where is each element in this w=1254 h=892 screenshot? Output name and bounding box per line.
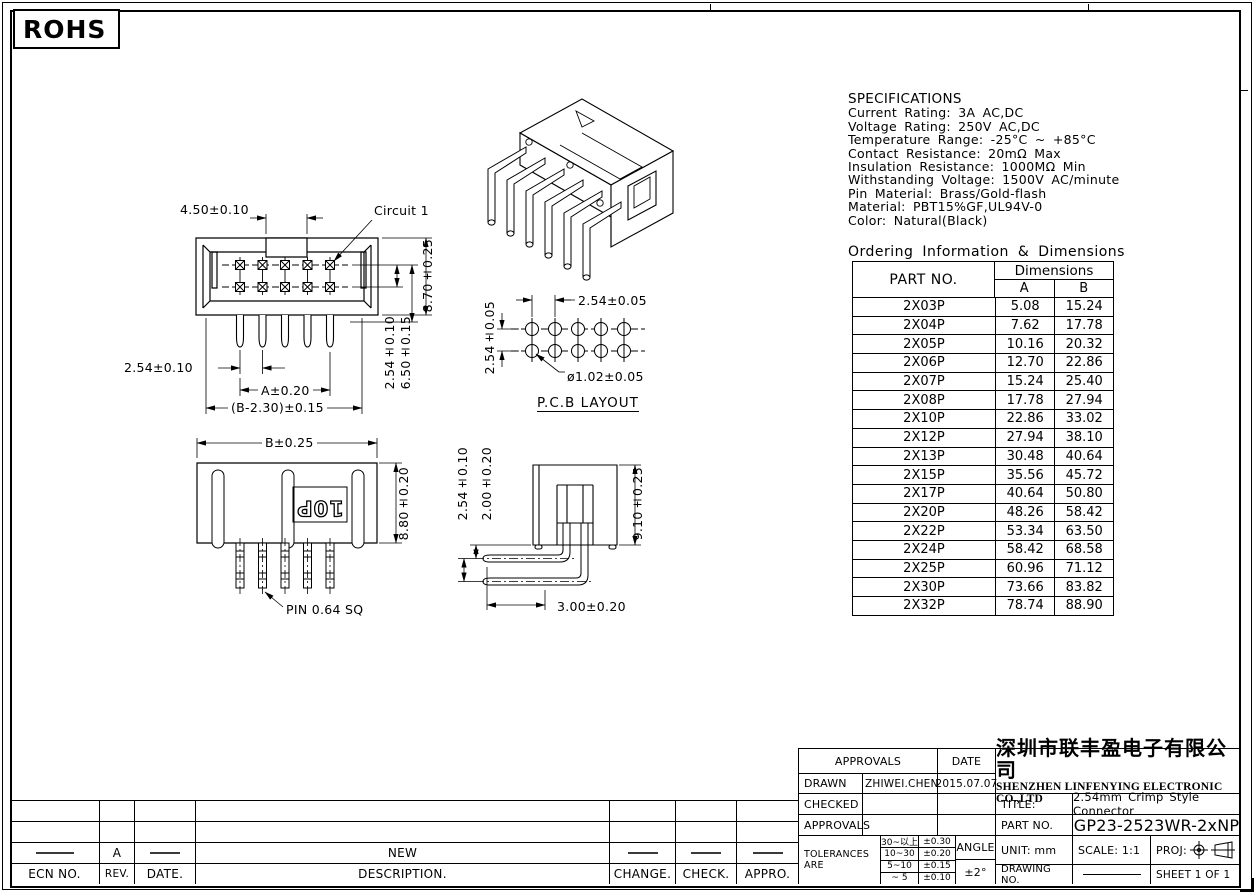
- dim-a-cell: 5.08: [995, 298, 1055, 316]
- date-placeholder: [135, 842, 196, 863]
- rev-header: REV.: [100, 863, 135, 884]
- checked-value: [862, 793, 937, 814]
- rev-value: A: [100, 842, 135, 863]
- dim-b-cell: 17.78: [1054, 317, 1113, 335]
- rev-cell: [610, 821, 676, 842]
- dim-a-cell: 48.26: [995, 504, 1055, 522]
- dim-b-cell: 83.82: [1054, 578, 1113, 596]
- approvals-date: [937, 814, 995, 835]
- front-dim-b: (B-2.30)±0.15: [228, 401, 327, 414]
- part-no-cell: 2X12P: [853, 429, 995, 447]
- dim-b-cell: 40.64: [1054, 448, 1113, 466]
- dim-a-cell: 60.96: [995, 560, 1055, 578]
- frame-tick: [1088, 4, 1089, 12]
- bottom-dim-b: B±0.25: [262, 436, 317, 449]
- table-row: 2X30P73.6683.82: [853, 577, 1113, 596]
- dim-b-cell: 45.72: [1054, 466, 1113, 484]
- tolerances-label: TOLERANCES ARE: [798, 835, 880, 884]
- part-no-cell: 2X24P: [853, 541, 995, 559]
- date-header: DATE: [937, 748, 995, 773]
- dim-b-cell: 71.12: [1054, 560, 1113, 578]
- dim-b-cell: 22.86: [1054, 354, 1113, 372]
- company-cell: 深圳市联丰盈电子有限公司 SHENZHEN LINFENYING ELECTRO…: [995, 748, 1240, 793]
- appro-placeholder: [737, 842, 798, 863]
- part-no-label: PART NO.: [995, 814, 1072, 835]
- table-row: 2X08P17.7827.94: [853, 390, 1113, 409]
- dim-b-cell: 68.58: [1054, 541, 1113, 559]
- drawn-name: ZHIWEI.CHEN: [862, 773, 937, 793]
- tolerances-table: 30~以上±0.30 10~30±0.20 5~10±0.15 ~ 5±0.10: [880, 835, 955, 884]
- dim-b-cell: 15.24: [1054, 298, 1113, 316]
- col-a-header: A: [994, 280, 1054, 297]
- check-header: CHECK.: [676, 863, 737, 884]
- rev-cell: [100, 800, 135, 821]
- dim-a-cell: 58.42: [995, 541, 1055, 559]
- date-header: DATE.: [135, 863, 196, 884]
- part-no-cell: 2X30P: [853, 578, 995, 596]
- table-row: 2X05P10.1620.32: [853, 334, 1113, 353]
- projection-cell: PROJ:: [1150, 835, 1240, 864]
- dim-a-cell: 12.70: [995, 354, 1055, 372]
- part-no-cell: 2X15P: [853, 466, 995, 484]
- pcb-layout-caption: P.C.B LAYOUT: [537, 397, 639, 412]
- rev-cell: [737, 800, 798, 821]
- rev-cell: [610, 800, 676, 821]
- third-angle-projection-icon: [1189, 840, 1235, 860]
- tol-value: ±0.20: [918, 847, 955, 859]
- rev-cell: [10, 821, 100, 842]
- table-row: 2X03P5.0815.24: [853, 297, 1113, 316]
- approvals-header: APPROVALS: [798, 748, 937, 773]
- side-dim-pitch: 2.54±0.10: [456, 447, 470, 520]
- angle-label: ANGLE: [955, 835, 995, 859]
- drawing-sheet: ROHS: [0, 0, 1254, 892]
- revision-table: A NEW ECN NO. REV. DATE. DESCRIPTION. CH…: [10, 800, 798, 884]
- dim-a-cell: 30.48: [995, 448, 1055, 466]
- front-dim-pitch: 2.54±0.10: [124, 361, 193, 374]
- dim-a-cell: 7.62: [995, 317, 1055, 335]
- part-no-cell: 2X05P: [853, 335, 995, 353]
- rev-cell: [135, 800, 196, 821]
- tol-range: 5~10: [880, 860, 918, 872]
- isometric-view-drawing: [482, 85, 707, 290]
- table-row: 2X04P7.6217.78: [853, 316, 1113, 335]
- table-row: 2X20P48.2658.42: [853, 503, 1113, 522]
- front-dim-height: 8.70±0.25: [421, 239, 435, 312]
- drawing-no-value: [1072, 864, 1150, 884]
- part-no-cell: 2X13P: [853, 448, 995, 466]
- part-no-cell: 2X03P: [853, 298, 995, 316]
- dim-b-cell: 20.32: [1054, 335, 1113, 353]
- specifications-title: SPECIFICATIONS: [848, 93, 1119, 106]
- proj-label: PROJ:: [1156, 844, 1187, 857]
- dim-a-cell: 73.66: [995, 578, 1055, 596]
- approvals-value: [862, 814, 937, 835]
- appro-header: APPRO.: [737, 863, 798, 884]
- angle-value: ±2°: [955, 859, 995, 884]
- frame-tick: [1240, 90, 1248, 91]
- drawn-label: DRAWN: [798, 773, 862, 793]
- rev-cell: [100, 821, 135, 842]
- tol-value: ±0.10: [918, 872, 955, 884]
- spec-line: Material: PBT15%GF,UL94V-0: [848, 200, 1119, 213]
- dim-a-cell: 22.86: [995, 410, 1055, 428]
- rev-cell: [196, 821, 610, 842]
- dim-b-cell: 88.90: [1054, 597, 1113, 615]
- spec-line: Contact Resistance: 20mΩ Max: [848, 147, 1119, 160]
- bottom-view-drawing: [150, 430, 485, 630]
- pcb-dim-vertical: 2.54±0.05: [483, 301, 497, 374]
- check-placeholder: [676, 842, 737, 863]
- dim-a-cell: 35.56: [995, 466, 1055, 484]
- bottom-pin-label: PIN 0.64 SQ: [286, 603, 363, 616]
- part-no-cell: 2X10P: [853, 410, 995, 428]
- front-dim-pin-depth: 6.50±0.15: [399, 316, 413, 389]
- description-header: DESCRIPTION.: [196, 863, 610, 884]
- dim-b-cell: 27.94: [1054, 391, 1113, 409]
- spec-line: Voltage Rating: 250V AC,DC: [848, 120, 1119, 133]
- spec-line: Pin Material: Brass/Gold-flash: [848, 187, 1119, 200]
- dim-a-cell: 15.24: [995, 373, 1055, 391]
- part-no-header: PART NO.: [853, 262, 994, 297]
- unit-label: UNIT: mm: [995, 835, 1072, 864]
- dim-a-cell: 78.74: [995, 597, 1055, 615]
- checked-label: CHECKED: [798, 793, 862, 814]
- specifications-block: SPECIFICATIONS Current Rating: 3A AC,DC …: [848, 93, 1119, 227]
- sheet-label: SHEET 1 OF 1: [1150, 864, 1240, 884]
- spec-line: Color: Natural(Black): [848, 214, 1119, 227]
- part-no-cell: 2X17P: [853, 485, 995, 503]
- drawing-no-label: DRAWING NO.: [995, 864, 1072, 884]
- spec-line: Insulation Resistance: 1000MΩ Min: [848, 160, 1119, 173]
- approvals-label: APPROVALS: [798, 814, 862, 835]
- rev-cell: [10, 800, 100, 821]
- table-row: 2X12P27.9438.10: [853, 428, 1113, 447]
- ordering-heading: Ordering Information & Dimensions: [848, 244, 1125, 260]
- dimensions-table: PART NO. Dimensions A B 2X03P5.0815.24 2…: [852, 261, 1114, 616]
- bottom-dim-height: 8.80±0.20: [397, 467, 411, 540]
- ecn-placeholder: [10, 842, 100, 863]
- table-row: 2X32P78.7488.90: [853, 596, 1113, 615]
- rev-cell: [135, 821, 196, 842]
- title-block: APPROVALS DATE 深圳市联丰盈电子有限公司 SHENZHEN LIN…: [798, 748, 1240, 884]
- side-dim-standoff: 2.00±0.20: [480, 447, 494, 520]
- table-row: 2X13P30.4840.64: [853, 447, 1113, 466]
- company-name-cn: 深圳市联丰盈电子有限公司: [996, 737, 1240, 781]
- drawn-date: 2015.07.07: [937, 773, 995, 793]
- dim-a-cell: 17.78: [995, 391, 1055, 409]
- corner-mark: [1240, 878, 1254, 892]
- bottom-marking-10p: 10P: [296, 490, 344, 520]
- frame-tick: [710, 4, 711, 12]
- description-value: NEW: [196, 842, 610, 863]
- spec-line: Current Rating: 3A AC,DC: [848, 106, 1119, 119]
- table-row: 2X06P12.7022.86: [853, 353, 1113, 372]
- change-header: CHANGE.: [610, 863, 676, 884]
- front-dim-top: 4.50±0.10: [180, 203, 249, 216]
- dim-b-cell: 50.80: [1054, 485, 1113, 503]
- spec-line: Temperature Range: -25°C ~ +85°C: [848, 133, 1119, 146]
- part-no-cell: 2X22P: [853, 522, 995, 540]
- table-row: 2X10P22.8633.02: [853, 409, 1113, 428]
- change-placeholder: [610, 842, 676, 863]
- table-row: 2X25P60.9671.12: [853, 559, 1113, 578]
- table-row: 2X15P35.5645.72: [853, 465, 1113, 484]
- rohs-label: ROHS: [23, 15, 106, 44]
- dim-b-cell: 33.02: [1054, 410, 1113, 428]
- tol-value: ±0.30: [918, 835, 955, 847]
- tol-range: 30~以上: [880, 835, 918, 847]
- part-no-cell: 2X08P: [853, 391, 995, 409]
- title-label: TITLE:: [995, 793, 1072, 814]
- part-no-cell: 2X32P: [853, 597, 995, 615]
- title-value: 2.54mm Crimp Style Connector: [1072, 793, 1240, 814]
- front-dim-row-pitch: 2.54±0.10: [383, 316, 397, 389]
- part-no-cell: 2X25P: [853, 560, 995, 578]
- rev-cell: [676, 821, 737, 842]
- rev-cell: [676, 800, 737, 821]
- table-row: 2X24P58.4268.58: [853, 540, 1113, 559]
- tol-range: 10~30: [880, 847, 918, 859]
- ecn-no-header: ECN NO.: [10, 863, 100, 884]
- part-no-cell: 2X20P: [853, 504, 995, 522]
- front-circuit1-label: Circuit 1: [374, 204, 429, 217]
- rohs-badge: ROHS: [13, 9, 120, 49]
- part-no-cell: 2X06P: [853, 354, 995, 372]
- dim-b-cell: 38.10: [1054, 429, 1113, 447]
- part-no-cell: 2X07P: [853, 373, 995, 391]
- checked-date: [937, 793, 995, 814]
- table-row: 2X17P40.6450.80: [853, 484, 1113, 503]
- tol-range: ~ 5: [880, 872, 918, 884]
- tol-value: ±0.15: [918, 860, 955, 872]
- part-no-value: GP23-2523WR-2xNP: [1072, 814, 1240, 835]
- rev-cell: [737, 821, 798, 842]
- side-dim-height: 9.10±0.25: [631, 467, 645, 540]
- pcb-dim-horizontal: 2.54±0.05: [578, 294, 647, 307]
- dim-b-cell: 58.42: [1054, 504, 1113, 522]
- dim-a-cell: 27.94: [995, 429, 1055, 447]
- rev-cell: [196, 800, 610, 821]
- front-dim-a: A±0.20: [258, 384, 313, 397]
- table-row: 2X07P15.2425.40: [853, 372, 1113, 391]
- spec-line: Withstanding Voltage: 1500V AC/minute: [848, 173, 1119, 186]
- dim-a-cell: 53.34: [995, 522, 1055, 540]
- dim-b-cell: 63.50: [1054, 522, 1113, 540]
- pcb-hole-dim: ø1.02±0.05: [567, 370, 644, 383]
- col-b-header: B: [1054, 280, 1114, 297]
- dim-b-cell: 25.40: [1054, 373, 1113, 391]
- dimensions-header: Dimensions: [994, 262, 1113, 279]
- scale-label: SCALE: 1:1: [1072, 835, 1150, 864]
- side-dim-tail: 3.00±0.20: [557, 600, 626, 613]
- table-row: 2X22P53.3463.50: [853, 521, 1113, 540]
- part-no-cell: 2X04P: [853, 317, 995, 335]
- dim-a-cell: 40.64: [995, 485, 1055, 503]
- dim-a-cell: 10.16: [995, 335, 1055, 353]
